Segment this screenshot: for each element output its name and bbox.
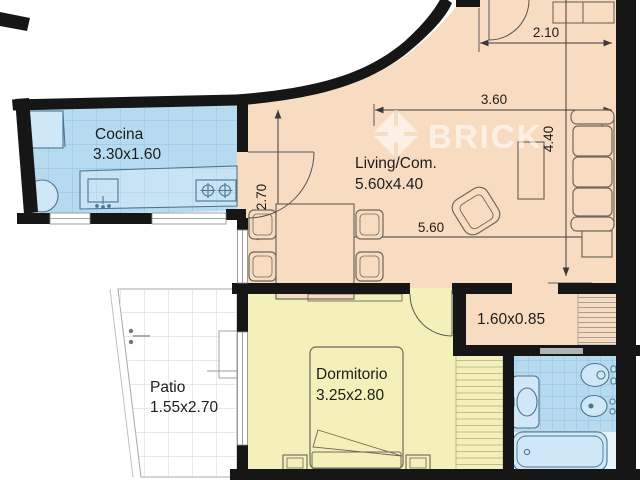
doorway-hall-floor [510, 283, 560, 295]
label-patio-size: 1.55x2.70 [150, 399, 218, 416]
bathtub [513, 432, 607, 471]
label-living: Living/Com. [355, 155, 437, 172]
dim-entry: 2.10 [533, 25, 559, 40]
neighbor-wall-fragment [0, 12, 30, 31]
label-dormitorio: Dormitorio [316, 366, 387, 383]
south-wall [230, 469, 640, 480]
floor-plan-canvas: BRICK Cocina 3.30x1.60 Living/Com. 5.60x… [0, 0, 640, 480]
counter [80, 166, 237, 209]
brand-name: BRICK [428, 118, 543, 155]
dim-living-width: 3.60 [481, 92, 507, 107]
dim-kitchen-side: 2.70 [254, 184, 269, 210]
dim-living-length: 5.60 [418, 220, 444, 235]
side-table [582, 231, 612, 257]
label-dormitorio-size: 3.25x2.80 [316, 387, 384, 404]
sofa [571, 110, 614, 231]
floor-plan: BRICK Cocina 3.30x1.60 Living/Com. 5.60x… [0, 0, 640, 480]
bedroom-closet [455, 352, 503, 470]
east-wall [616, 0, 636, 480]
label-living-size: 5.60x4.40 [355, 176, 423, 193]
watermark: BRICK [372, 110, 543, 158]
dim-living-depth: 4.40 [541, 126, 556, 152]
label-pasillo-size: 1.60x0.85 [477, 311, 545, 328]
stairs [578, 288, 617, 345]
label-cocina: Cocina [95, 126, 144, 143]
label-patio: Patio [150, 379, 185, 396]
bathroom-door [540, 348, 583, 354]
vanity [512, 376, 539, 428]
label-cocina-size: 3.30x1.60 [93, 146, 161, 163]
